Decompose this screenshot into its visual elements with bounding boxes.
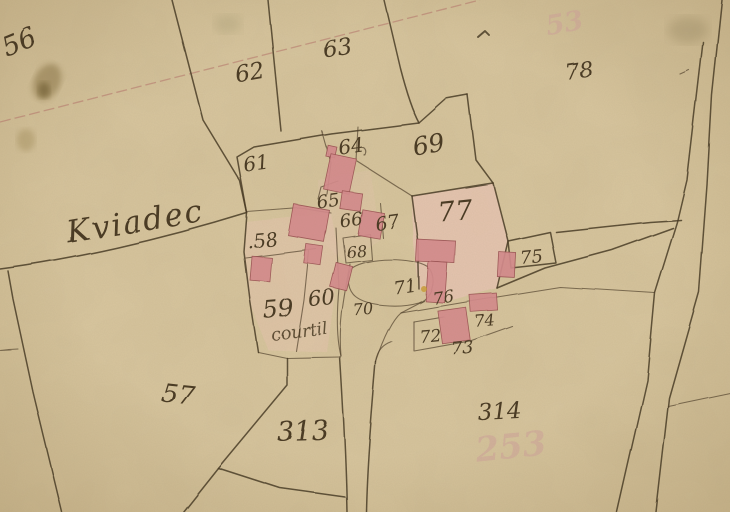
paper-grain [0,0,730,512]
cadastral-map-canvas: 53253 [0,0,730,512]
cadastral-map-scan: 53253 [0,0,730,512]
